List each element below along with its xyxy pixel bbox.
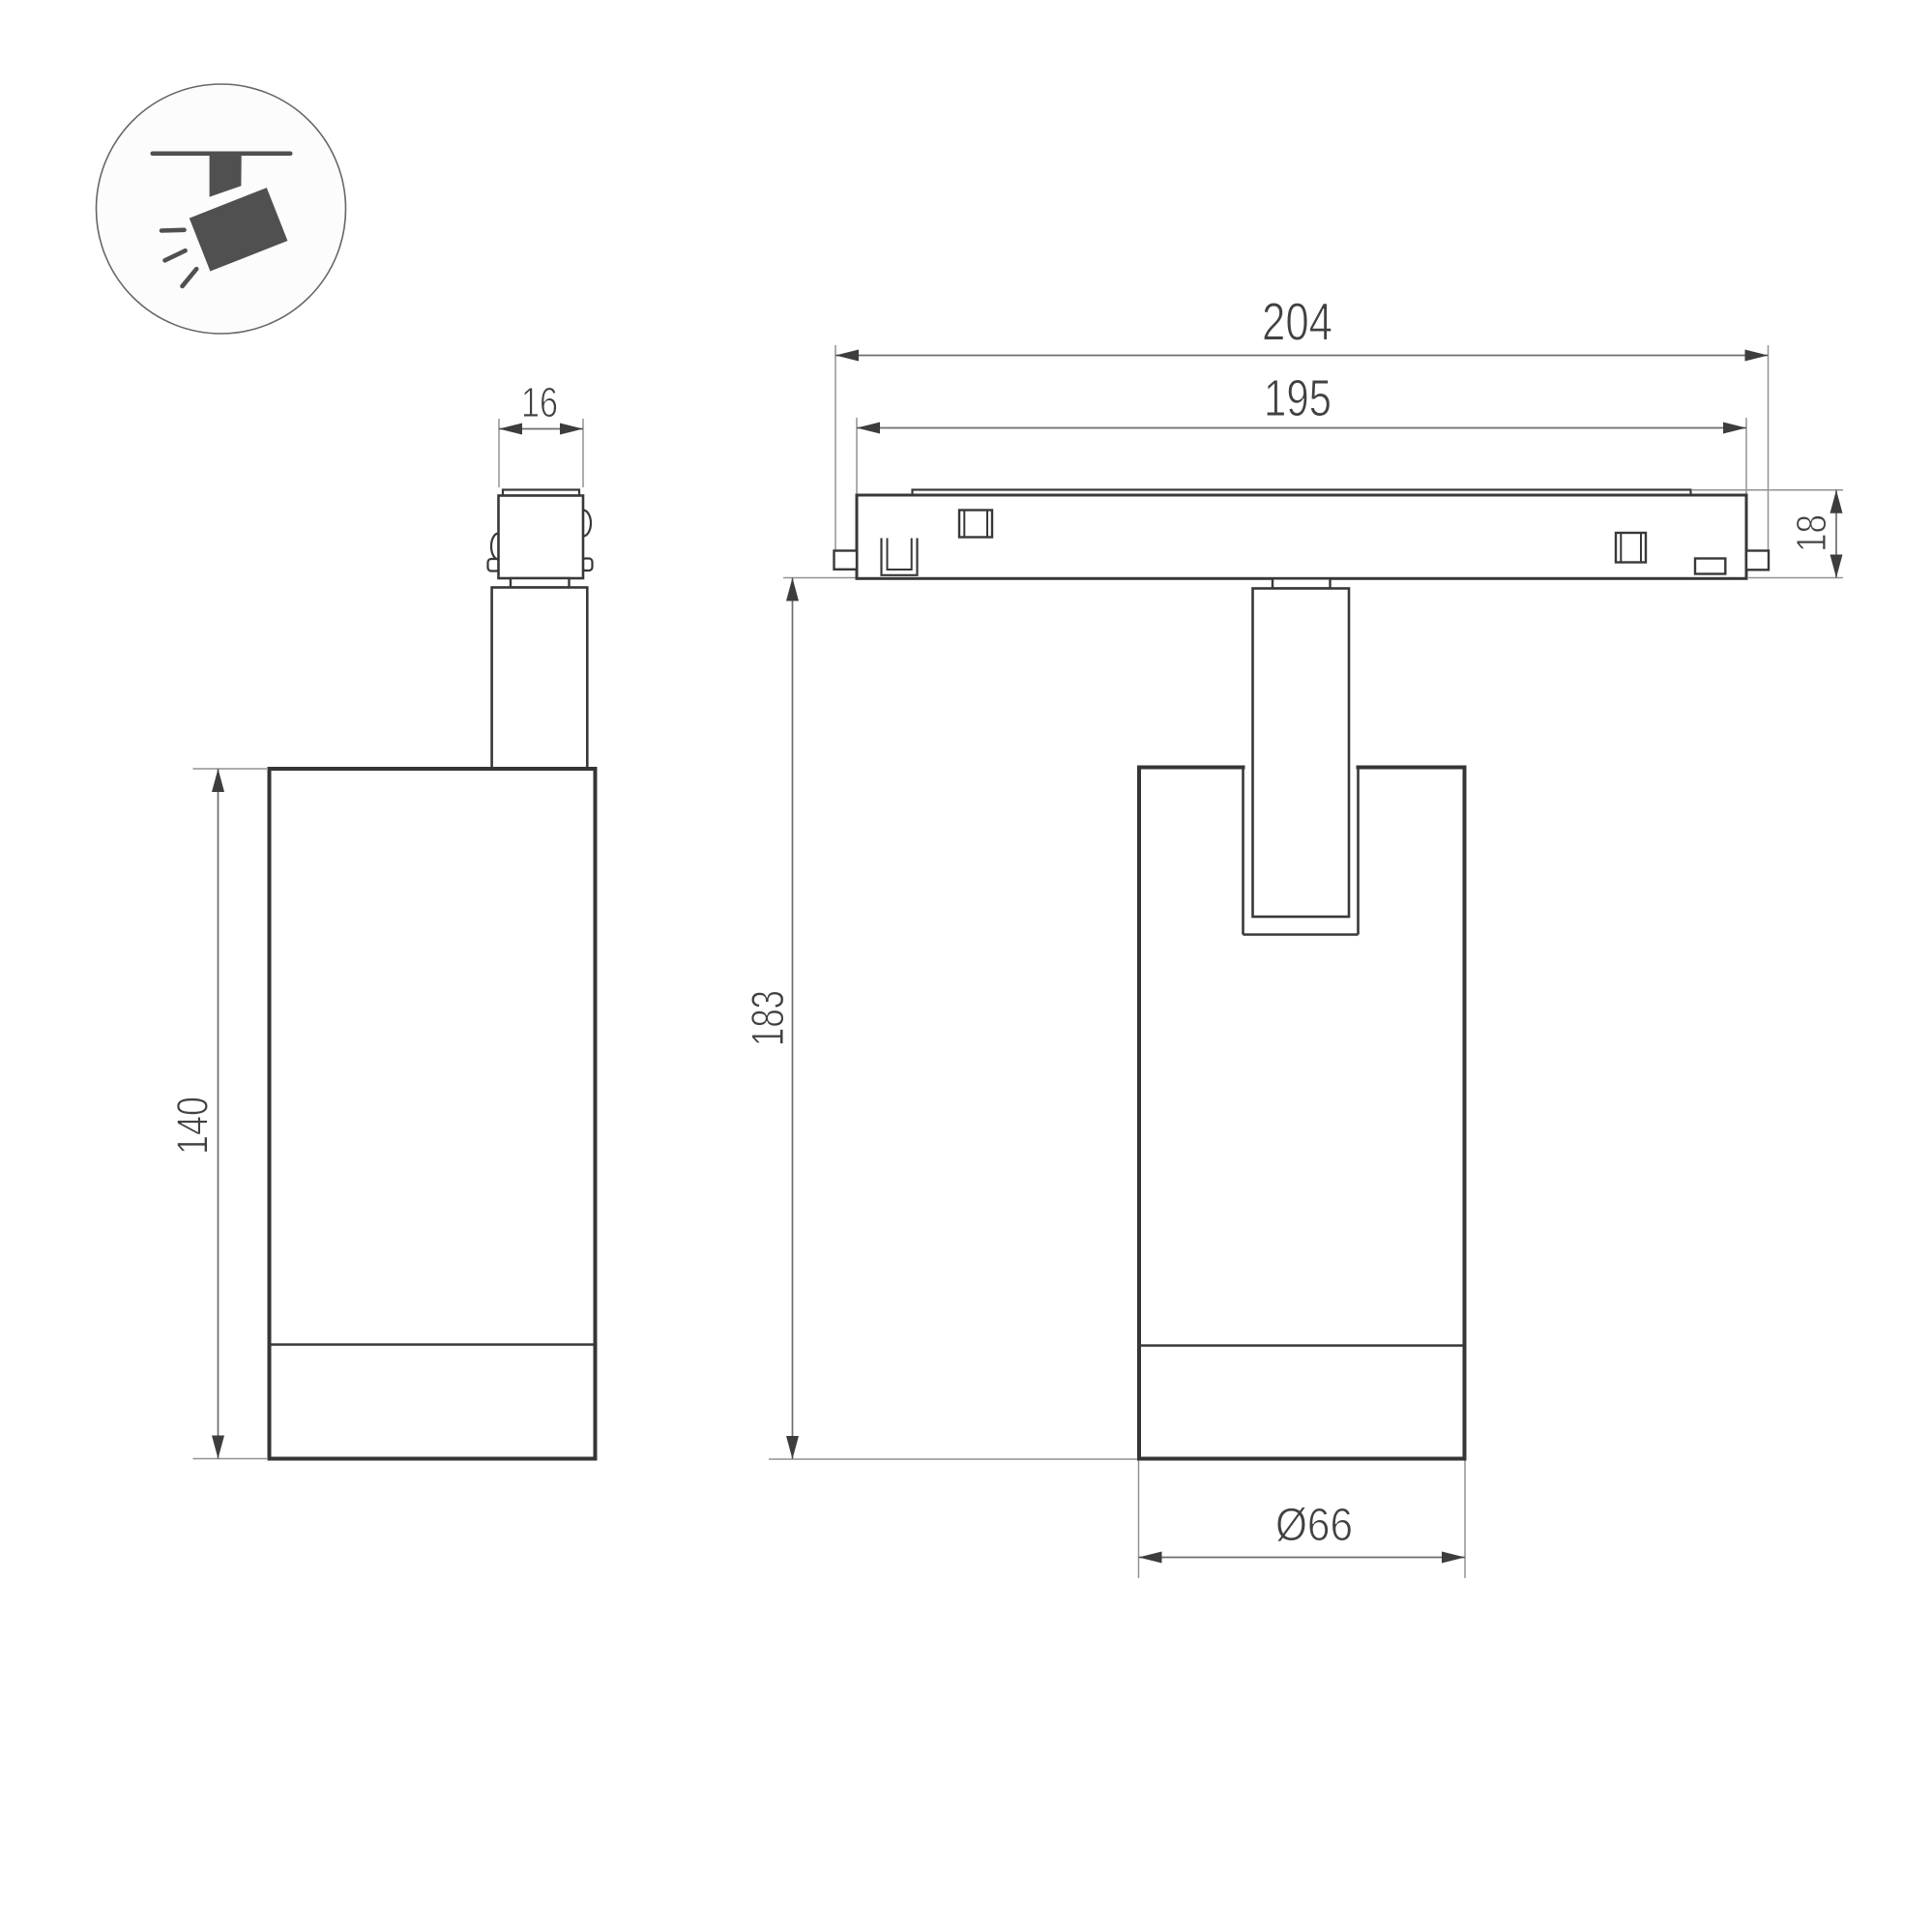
svg-text:195: 195 — [1264, 369, 1332, 427]
svg-text:Ø66: Ø66 — [1275, 1500, 1353, 1551]
svg-text:183: 183 — [742, 990, 793, 1046]
svg-text:204: 204 — [1262, 292, 1332, 352]
svg-text:16: 16 — [521, 379, 558, 426]
svg-text:18: 18 — [1788, 514, 1835, 552]
svg-text:140: 140 — [168, 1097, 218, 1155]
